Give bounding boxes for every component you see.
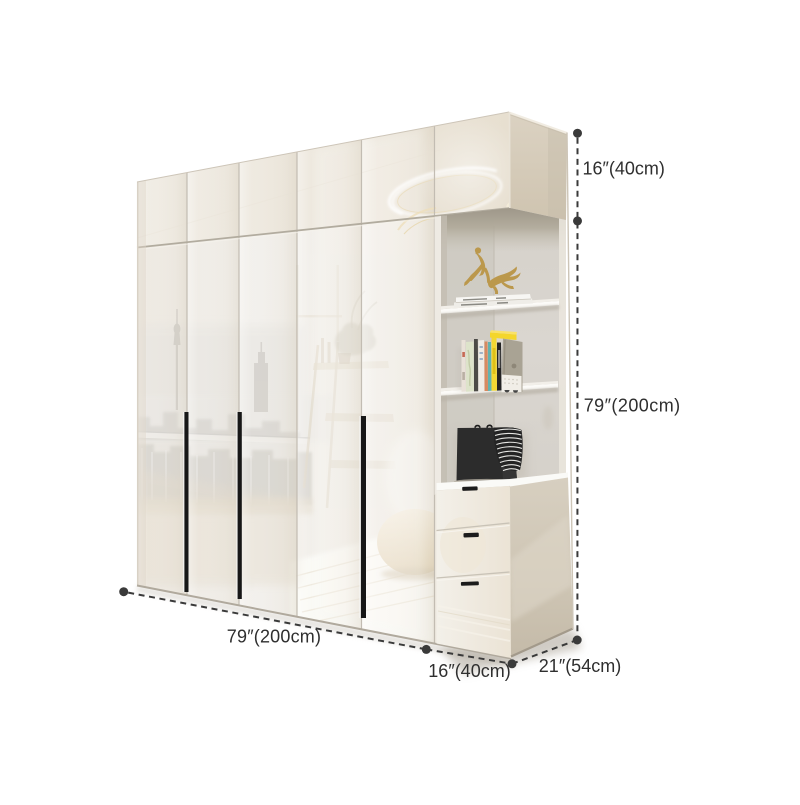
svg-text:21″(54cm): 21″(54cm) xyxy=(539,656,621,676)
svg-text:79″(200cm): 79″(200cm) xyxy=(227,626,321,646)
svg-text:16″(40cm): 16″(40cm) xyxy=(428,661,510,681)
svg-text:16″(40cm): 16″(40cm) xyxy=(583,158,665,178)
svg-text:79″(200cm): 79″(200cm) xyxy=(584,396,681,416)
